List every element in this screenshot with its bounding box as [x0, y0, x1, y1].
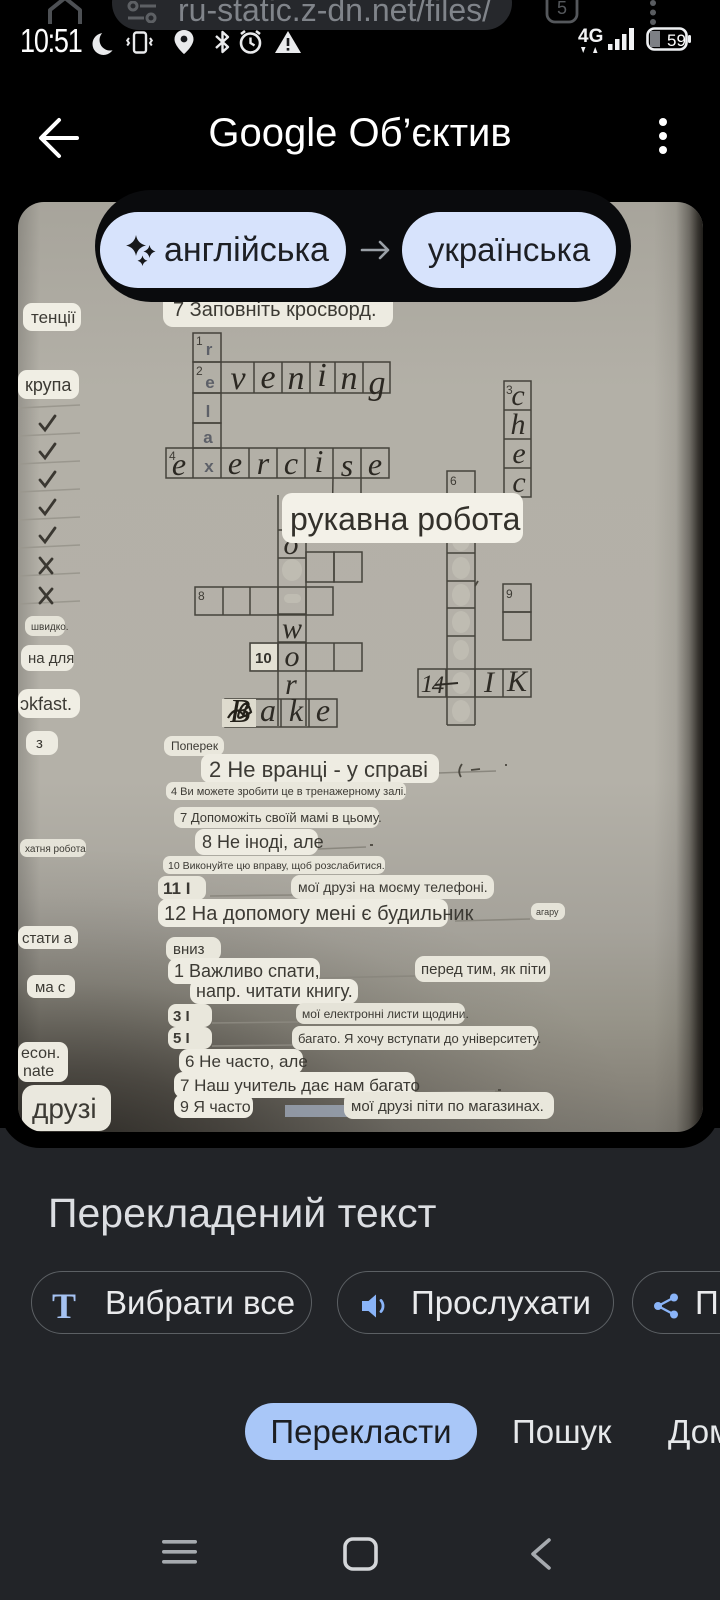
- svg-text:мої електронні листи щодини.: мої електронні листи щодини.: [302, 1007, 469, 1021]
- svg-text:nate: nate: [23, 1063, 54, 1080]
- svg-text:тенції: тенції: [31, 308, 76, 327]
- svg-text:g: g: [369, 365, 386, 402]
- svg-text:на для: на для: [28, 650, 74, 667]
- svg-text:e: e: [260, 359, 275, 396]
- svg-text:5: 5: [557, 0, 567, 18]
- svg-text:2: 2: [196, 364, 203, 378]
- svg-text:стати а: стати а: [22, 930, 73, 947]
- svg-text:i: i: [317, 357, 326, 394]
- svg-text:8: 8: [198, 589, 205, 603]
- svg-text:крупа: крупа: [25, 375, 72, 395]
- svg-text:есон.: есон.: [21, 1045, 60, 1062]
- svg-text:ɔkfast.: ɔkfast.: [20, 694, 72, 714]
- svg-text:Поперек: Поперек: [171, 739, 219, 753]
- svg-text:8 Не іноді, але: 8 Не іноді, але: [202, 832, 324, 852]
- svg-text:r: r: [206, 340, 213, 359]
- svg-text:a: a: [260, 692, 276, 728]
- svg-text:2 Не вранці - у справі: 2 Не вранці - у справі: [209, 757, 428, 782]
- svg-text:r: r: [257, 445, 270, 481]
- svg-text:e: e: [368, 446, 382, 482]
- svg-text:e: e: [172, 446, 186, 482]
- svg-text:швидко.: швидко.: [31, 622, 69, 633]
- svg-text:c: c: [284, 445, 298, 481]
- svg-text:мої друзі на моєму телефоні.: мої друзі на моєму телефоні.: [298, 879, 488, 895]
- svg-text:59: 59: [667, 31, 686, 50]
- svg-text:e: e: [316, 692, 330, 728]
- svg-text:12 На допомогу мені є будильни: 12 На допомогу мені є будильник: [164, 903, 474, 925]
- svg-text:s: s: [341, 447, 353, 483]
- svg-text:перед тим, як піти: перед тим, як піти: [421, 961, 546, 978]
- svg-text:7 Заповніть кросворд.: 7 Заповніть кросворд.: [173, 299, 377, 321]
- svg-text:11 I: 11 I: [163, 879, 190, 898]
- svg-text:9: 9: [506, 587, 513, 601]
- svg-text:k: k: [289, 692, 304, 728]
- svg-text:3 I: 3 I: [173, 1008, 190, 1025]
- svg-text:e: e: [205, 373, 214, 392]
- svg-text:1: 1: [196, 334, 203, 348]
- svg-text:e: e: [228, 445, 242, 481]
- svg-text:з: з: [36, 735, 43, 752]
- svg-text:1 Важливо спати,: 1 Важливо спати,: [174, 961, 320, 981]
- svg-text:i: i: [315, 443, 324, 479]
- svg-text:a: a: [203, 428, 213, 447]
- svg-text:6 Не часто, але: 6 Не часто, але: [185, 1052, 308, 1071]
- svg-text:6: 6: [450, 474, 457, 488]
- svg-text:10: 10: [255, 650, 272, 667]
- svg-text:v: v: [230, 360, 246, 397]
- svg-text:5 I: 5 I: [173, 1030, 190, 1047]
- svg-text:напр. читати книгу.: напр. читати книгу.: [196, 981, 353, 1001]
- svg-text:10 Виконуйте цю вправу, щоб ро: 10 Виконуйте цю вправу, щоб розслабитися…: [168, 860, 385, 872]
- svg-text:n: n: [341, 360, 358, 397]
- svg-text:n: n: [288, 360, 305, 397]
- svg-text:ма с: ма с: [35, 979, 66, 996]
- svg-text:K: K: [506, 665, 529, 698]
- svg-text:багато. Я хочу вступати до уні: багато. Я хочу вступати до університету.: [298, 1031, 541, 1046]
- svg-text:7 Допоможіть своїй мамі в цьом: 7 Допоможіть своїй мамі в цьому.: [180, 810, 382, 825]
- svg-text:хатня робота: хатня робота: [25, 843, 86, 855]
- svg-text:x: x: [204, 457, 214, 476]
- svg-text:4 Ви можете зробити це в трена: 4 Ви можете зробити це в тренажерному за…: [171, 786, 406, 798]
- svg-text:вниз: вниз: [173, 941, 205, 958]
- svg-text:мої друзі піти по магазинах.: мої друзі піти по магазинах.: [351, 1098, 544, 1115]
- svg-text:9 Я часто: 9 Я часто: [180, 1099, 251, 1116]
- svg-text:рукавна робота: рукавна робота: [290, 501, 521, 537]
- svg-text:агару: агару: [536, 907, 559, 917]
- svg-text:друзі: друзі: [32, 1093, 97, 1124]
- svg-text:l: l: [206, 402, 211, 421]
